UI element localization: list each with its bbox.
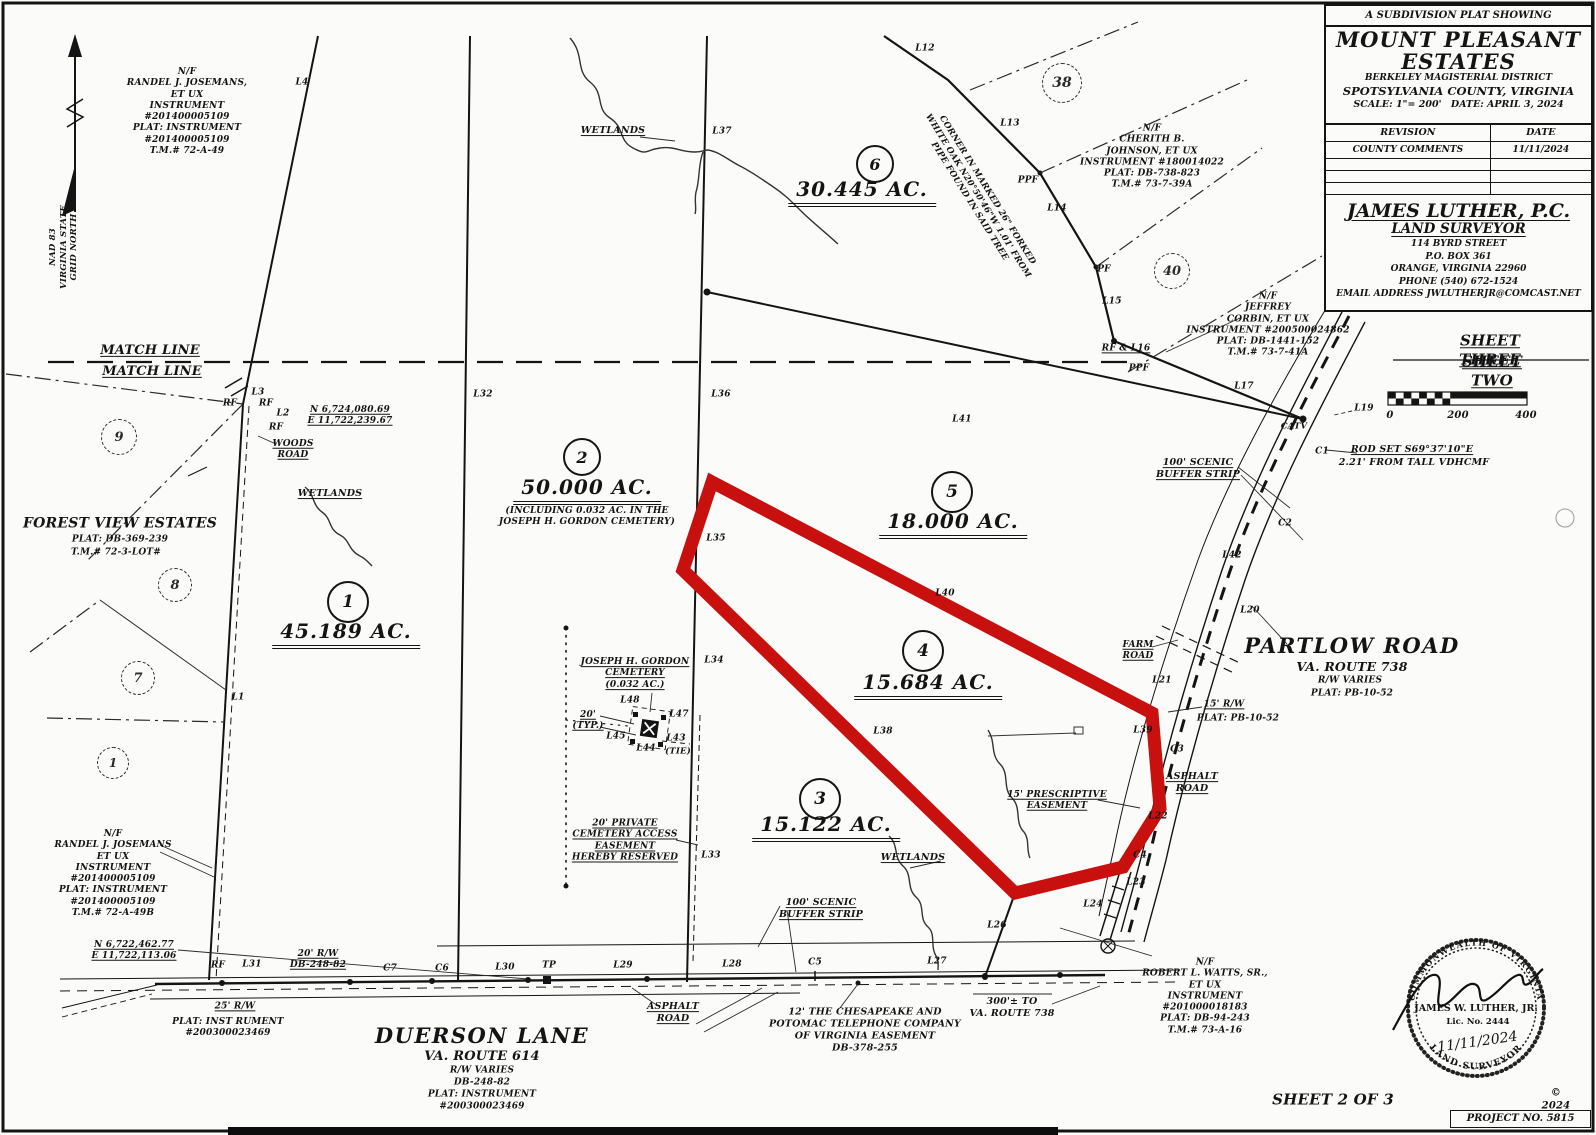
lot-number-6: 6: [856, 145, 894, 183]
seal-name: JAMES W. LUTHER, JR.: [1413, 1003, 1538, 1014]
match-line-label: MATCH LINE: [100, 343, 200, 359]
map-label: C3: [1170, 744, 1184, 755]
sheet-two-label: SHEET TWO: [1440, 352, 1544, 390]
seal-commonwealth: COMMONWEALTH OF VIRGINIA: [1406, 937, 1545, 1001]
lot-number-9: 9: [101, 419, 137, 455]
svg-text:COMMONWEALTH OF VIRGINIA: COMMONWEALTH OF VIRGINIA: [1406, 937, 1545, 1001]
surveyor-email: EMAIL ADDRESS JWLUTHERJR@COMCAST.NET: [1326, 288, 1591, 301]
scale-bar-200: 200: [1447, 410, 1468, 423]
map-label: C5: [808, 957, 822, 968]
owner-josemans-south: N/F RANDEL J. JOSEMANS ET UX INSTRUMENT …: [54, 829, 171, 919]
lot2-cemetery-note: (INCLUDING 0.032 AC. IN THE JOSEPH H. GO…: [499, 506, 675, 529]
scenic-buffer-label: 100' SCENIC BUFFER STRIP: [1156, 457, 1240, 481]
map-label: L24: [1083, 899, 1102, 910]
surveyor-address: P.O. BOX 361: [1326, 251, 1591, 264]
lot-number-8: 8: [158, 568, 192, 602]
seal-date: 11/11/2024: [1436, 1029, 1518, 1056]
surveyor-firm: JAMES LUTHER, P.C.: [1326, 201, 1591, 221]
north-datum-note: NAD 83 VIRGINIA STATE GRID NORTH: [48, 205, 80, 289]
map-label: 15' R/W: [1204, 699, 1245, 710]
map-label: L31: [242, 959, 261, 970]
map-label: L20: [1240, 605, 1259, 616]
map-label: L37: [712, 126, 731, 137]
map-label: L41: [952, 414, 971, 425]
surveyor-address: ORANGE, VIRGINIA 22960: [1326, 263, 1591, 276]
plat-scale-date: SCALE: 1"= 200' DATE: APRIL 3, 2024: [1326, 98, 1591, 111]
revision-table-header: REVISION DATE: [1326, 125, 1591, 142]
map-label: L38: [873, 726, 892, 737]
revision-date-cell: 11/11/2024: [1491, 142, 1591, 158]
lot-number-1: 1: [97, 747, 129, 779]
cemetery-access-easement-note: 20' PRIVATE CEMETERY ACCESS EASEMENT HER…: [572, 819, 678, 864]
map-label: L21: [1152, 675, 1171, 686]
map-label: L13: [1000, 118, 1019, 129]
coordinate-note-north: N 6,724,080.69 E 11,722,239.67: [307, 405, 392, 428]
map-label: L34: [704, 655, 723, 666]
seal-license: Lic. No. 2444: [1446, 1017, 1509, 1027]
map-label: C4: [1133, 850, 1147, 861]
revision-header-cell: REVISION: [1326, 125, 1491, 141]
plat-county: SPOTSYLVANIA COUNTY, VIRGINIA: [1326, 84, 1591, 98]
map-label: L28: [722, 959, 741, 970]
map-label: L19: [1354, 403, 1373, 414]
lot2-acreage: 50.000 AC.: [513, 475, 661, 505]
map-label: VA. ROUTE 614: [424, 1049, 540, 1065]
map-label: L27: [927, 956, 946, 967]
map-label: RF: [259, 398, 273, 409]
title-block: A SUBDIVISION PLAT SHOWING MOUNT PLEASAN…: [1324, 4, 1593, 312]
duerson-lane-label: DUERSON LANE: [375, 1023, 589, 1049]
lot-number-4: 4: [902, 630, 944, 672]
map-label: TP: [542, 960, 556, 971]
revision-table-row: [1326, 159, 1591, 171]
map-label: L42: [1222, 550, 1241, 561]
revision-table-row: [1326, 171, 1591, 183]
surveyor-block: JAMES LUTHER, P.C. LAND SURVEYOR 114 BYR…: [1326, 195, 1591, 301]
map-label: L47: [669, 709, 688, 720]
map-label: C7: [383, 963, 397, 974]
asphalt-road-label: ASPHALT ROAD: [647, 1001, 699, 1025]
lot-number-7: 7: [121, 661, 155, 695]
surveyor-address: 114 BYRD STREET: [1326, 238, 1591, 251]
project-number-box: PROJECT NO. 5815: [1450, 1110, 1591, 1128]
prescriptive-easement-note: 15' PRESCRIPTIVE EASEMENT: [1007, 790, 1107, 813]
punch-hole: [1556, 509, 1574, 527]
map-label: PF: [1097, 264, 1111, 275]
map-label: L26: [987, 920, 1006, 931]
map-label: L1: [232, 692, 245, 703]
map-label: L36: [711, 389, 730, 400]
lot-number-1: 1: [327, 581, 369, 623]
asphalt-road-label: ASPHALT ROAD: [1166, 771, 1218, 795]
telephone-easement-note: 12' THE CHESAPEAKE AND POTOMAC TELEPHONE…: [769, 1006, 961, 1054]
map-label: PPF: [1018, 175, 1039, 186]
map-label: RF & L16: [1102, 343, 1151, 354]
map-label: L30: [495, 962, 514, 973]
revision-table-row: COUNTY COMMENTS 11/11/2024: [1326, 142, 1591, 159]
map-label: 20' (TYP.): [572, 710, 603, 733]
lot-number-38: 38: [1042, 63, 1082, 103]
surveyor-address: PHONE (540) 672-1524: [1326, 276, 1591, 289]
plat-scale: SCALE: 1"= 200': [1353, 99, 1441, 110]
owner-johnson: N/F CHERITH B. JOHNSON, ET UX INSTRUMENT…: [1080, 123, 1224, 191]
map-label: RF: [211, 960, 225, 971]
scale-bar-400: 400: [1515, 410, 1536, 423]
copyright-label: © 2024: [1536, 1088, 1576, 1113]
map-label: L15: [1102, 296, 1121, 307]
map-label: L35: [706, 533, 725, 544]
coordinate-note-south: N 6,722,462.77 E 11,722,113.06: [91, 940, 176, 963]
map-label: (TIE): [665, 747, 691, 758]
map-label: L48: [620, 695, 639, 706]
map-label: PLAT: PB-10-52: [1197, 713, 1279, 724]
plat-sheet: COMMONWEALTH OF VIRGINIA LAND SURVEYOR J…: [0, 0, 1596, 1135]
lot-number-3: 3: [799, 778, 841, 820]
date-header-cell: DATE: [1491, 125, 1591, 141]
map-label: L14: [1047, 203, 1066, 214]
lot-number-5: 5: [931, 471, 973, 513]
map-label: R/W VARIES: [1318, 675, 1382, 686]
map-label: L33: [701, 850, 720, 861]
owner-watts: N/F ROBERT L. WATTS, SR., ET UX INSTRUME…: [1142, 958, 1268, 1037]
north-arrow-icon: [62, 34, 83, 216]
plat-title: MOUNT PLEASANT ESTATES BERKELEY MAGISTER…: [1326, 27, 1591, 125]
map-label: PLAT: PB-10-52: [1311, 688, 1393, 699]
map-label: 20' R/W DB-248-82: [290, 949, 346, 972]
map-label: L17: [1234, 381, 1253, 392]
sheet-number-label: SHEET 2 OF 3: [1272, 1091, 1394, 1110]
plat-district: BERKELEY MAGISTERIAL DISTRICT: [1326, 72, 1591, 84]
map-label: L2: [277, 408, 290, 419]
map-label: L44: [636, 743, 655, 754]
map-label: L29: [613, 960, 632, 971]
map-label: PLAT: DB-369-239: [72, 534, 168, 545]
scale-bar: [1388, 392, 1527, 405]
plat-kicker: A SUBDIVISION PLAT SHOWING: [1326, 6, 1591, 27]
map-label: PLAT: INSTRUMENT: [428, 1089, 536, 1100]
scan-edge-bar: [228, 1127, 1058, 1135]
plat-title-line2: ESTATES: [1326, 51, 1591, 72]
wetlands-label: WETLANDS: [581, 125, 645, 137]
lot1-acreage: 45.189 AC.: [272, 619, 420, 649]
map-label: DB-248-82: [454, 1077, 510, 1088]
plat-date: DATE: APRIL 3, 2024: [1451, 99, 1564, 110]
match-line-label: MATCH LINE: [102, 364, 202, 380]
scale-bar-0: 0: [1386, 410, 1393, 423]
map-label: C2: [1278, 518, 1292, 529]
map-label: C1: [1315, 446, 1329, 457]
map-label: R/W VARIES: [450, 1065, 514, 1076]
forest-view-estates-label: FOREST VIEW ESTATES: [23, 515, 217, 533]
wetlands-label: WETLANDS: [298, 488, 362, 500]
map-label: L4: [296, 77, 309, 88]
map-label: L45: [606, 731, 625, 742]
map-label: L39: [1133, 725, 1152, 736]
map-label: CATV: [1281, 422, 1308, 433]
map-label: 2.21' FROM TALL VDHCMF: [1339, 457, 1490, 469]
woods-road-label: WOODS ROAD: [272, 439, 313, 462]
map-label: 300'± TO VA. ROUTE 738: [969, 996, 1054, 1020]
lot4-acreage: 15.684 AC.: [854, 670, 1002, 700]
map-label: L3: [252, 387, 265, 398]
lot-number-2: 2: [563, 438, 601, 476]
partlow-road-label: PARTLOW ROAD: [1244, 633, 1459, 659]
map-label: T.M.# 72-3-LOT#: [71, 547, 161, 558]
map-label: L32: [473, 389, 492, 400]
map-label: RF: [269, 422, 283, 433]
map-label: L40: [935, 588, 954, 599]
wetlands-label: WETLANDS: [881, 852, 945, 864]
cemetery-label: JOSEPH H. GORDON CEMETERY (0.032 AC.): [581, 657, 690, 691]
scenic-buffer-label: 100' SCENIC BUFFER STRIP: [779, 897, 863, 921]
map-label: #200300023469: [439, 1101, 524, 1112]
lot6-acreage: 30.445 AC.: [788, 177, 936, 207]
lot5-acreage: 18.000 AC.: [879, 509, 1027, 539]
map-label: L12: [915, 43, 934, 54]
map-label: PPF: [1129, 363, 1150, 374]
map-label: VA. ROUTE 738: [1296, 659, 1407, 675]
revision-table-row: [1326, 183, 1591, 195]
revision-cell: COUNTY COMMENTS: [1326, 142, 1491, 158]
map-label: L43: [666, 733, 685, 744]
surveyor-role: LAND SURVEYOR: [1326, 221, 1591, 238]
map-label: RF: [223, 398, 237, 409]
map-label: L23: [1126, 877, 1145, 888]
map-label: C6: [435, 963, 449, 974]
owner-josemans-north: N/F RANDEL J. JOSEMANS, ET UX INSTRUMENT…: [127, 67, 247, 157]
surveyor-seal: COMMONWEALTH OF VIRGINIA LAND SURVEYOR J…: [1393, 937, 1546, 1076]
map-label: PLAT: INST RUMENT #200300023469: [172, 1017, 284, 1040]
rod-set-note: ROD SET S69°37'10"E: [1351, 444, 1473, 456]
farm-road-label: FARM ROAD: [1122, 640, 1153, 663]
map-label: 25' R/W: [215, 1001, 256, 1012]
lot-number-40: 40: [1154, 253, 1190, 289]
map-label: L22: [1148, 811, 1167, 822]
plat-title-line1: MOUNT PLEASANT: [1326, 29, 1591, 51]
